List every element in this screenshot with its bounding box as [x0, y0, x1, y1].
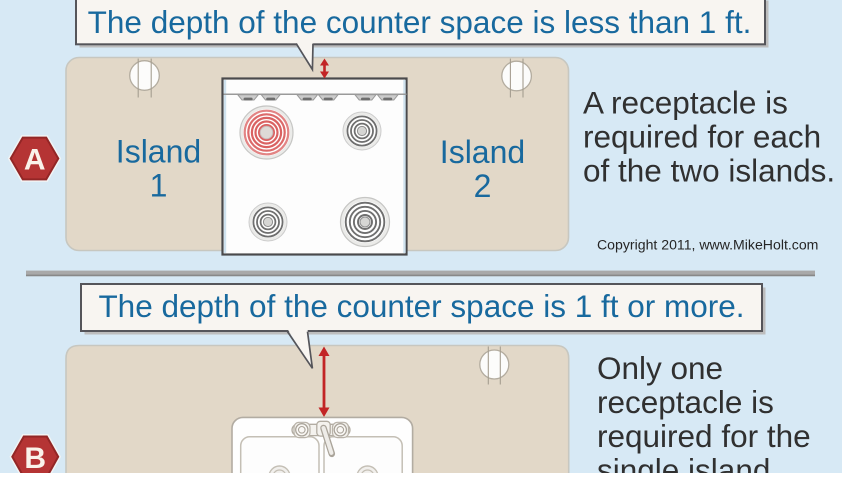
- svg-text:The depth of the counter space: The depth of the counter space is less t…: [88, 4, 752, 40]
- svg-text:A receptacle is: A receptacle is: [583, 85, 788, 121]
- svg-text:1: 1: [150, 168, 168, 204]
- svg-text:B: B: [24, 442, 46, 473]
- svg-text:single island.: single island.: [597, 452, 779, 473]
- svg-text:2: 2: [474, 168, 492, 204]
- svg-text:Copyright 2011, www.MikeHolt.c: Copyright 2011, www.MikeHolt.com: [597, 237, 818, 253]
- svg-text:receptacle is: receptacle is: [597, 384, 774, 420]
- svg-text:of the two islands.: of the two islands.: [583, 153, 835, 189]
- svg-text:required for the: required for the: [597, 418, 811, 454]
- svg-text:required for each: required for each: [583, 119, 821, 155]
- svg-text:Island: Island: [116, 134, 201, 170]
- svg-text:The depth of the counter space: The depth of the counter space is 1 ft o…: [98, 288, 744, 324]
- svg-text:A: A: [24, 144, 46, 177]
- svg-text:Island: Island: [440, 134, 525, 170]
- svg-text:Only one: Only one: [597, 350, 723, 386]
